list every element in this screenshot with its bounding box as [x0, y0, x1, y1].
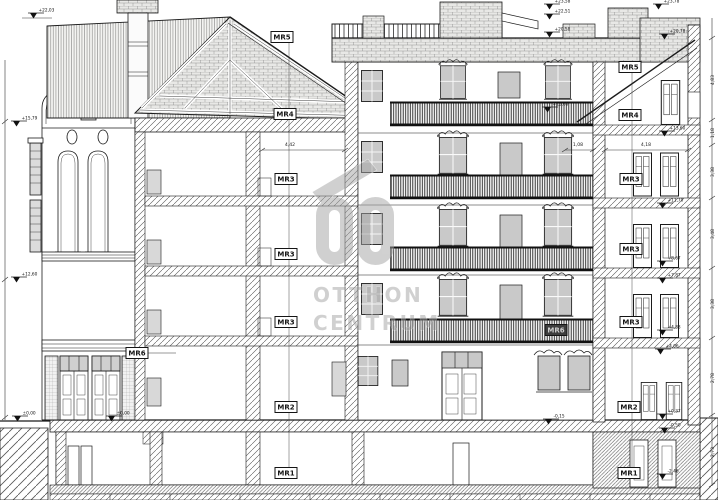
elevation-value: +20,78: [670, 29, 686, 35]
eaves-cornice: [135, 118, 360, 132]
dimension-value: 2,78: [710, 373, 716, 383]
hooded-window: [542, 203, 573, 246]
elevation-value: -2,46: [668, 469, 679, 475]
room-label: MR6: [545, 325, 567, 336]
right-wing-section: [577, 25, 700, 488]
room-label-text: MR3: [277, 176, 294, 184]
elevation-marker: +23,78: [653, 0, 680, 10]
room-label-text: MR5: [621, 64, 638, 72]
elevation-marker: +22,51: [544, 9, 571, 20]
elevation-value: +15,79: [22, 116, 38, 122]
elevation-value: +12,60: [22, 272, 38, 278]
outer-wall: [688, 25, 700, 425]
dimension-value: 3,38: [710, 299, 716, 309]
elevation-value: ±0,00: [117, 411, 130, 417]
stair-window: [362, 71, 383, 102]
dimension-value: 3,38: [710, 167, 716, 177]
elevation-marker: +23,58: [544, 0, 571, 10]
main-roof: [47, 0, 382, 132]
room-label: MR4: [619, 110, 641, 121]
elevation-value: +8,67: [668, 256, 681, 262]
elevation-value: +22,03: [39, 8, 55, 14]
room-label-text: MR3: [277, 319, 294, 327]
room-label-text: MR3: [277, 251, 294, 259]
elevation-value: +15,60: [553, 102, 569, 108]
elevation-value: -0,50: [670, 423, 681, 429]
elevation-value: +13,60: [670, 126, 686, 132]
dimension-value: 4,18: [641, 142, 651, 148]
hooded-window: [437, 203, 468, 246]
basement-door: [453, 443, 469, 485]
room-label-text: MR1: [620, 470, 637, 478]
room-label: MR3: [275, 174, 297, 185]
hooded-window: [439, 60, 467, 99]
floor-slab: [145, 336, 358, 346]
floor-slab: [593, 268, 700, 278]
room-label: MR4: [274, 109, 296, 120]
basement-door: [68, 446, 79, 485]
elevation-value: +7,87: [668, 273, 681, 279]
drawing-canvas: +22,03+15,79+12,60±0,00±0,00+23,58+22,51…: [0, 0, 718, 500]
room-label: MR3: [620, 174, 642, 185]
dimension-value: 4,42: [285, 142, 295, 148]
elevation-value: +4,83: [668, 325, 681, 331]
room-label-text: MR6: [128, 350, 145, 358]
floor-slab: [593, 338, 700, 348]
room-label-text: MR3: [622, 246, 639, 254]
elevation-value: +20,58: [555, 27, 571, 33]
hooded-window: [437, 273, 468, 316]
room-label-text: MR5: [273, 34, 290, 42]
elevation-value: +4,06: [666, 344, 679, 350]
room-label-text: MR2: [277, 404, 294, 412]
watermark-ring: [323, 204, 347, 259]
ground-mass-right: [700, 418, 718, 500]
dimension-value: 1,18: [710, 128, 716, 138]
room-label: MR1: [618, 468, 640, 479]
room-label-text: MR3: [622, 176, 639, 184]
floor-slab: [145, 266, 358, 276]
room-label: MR3: [620, 317, 642, 328]
hooded-window: [544, 60, 572, 99]
elevation-marker: ±0,00: [12, 411, 36, 422]
dimension-value: 1,08: [573, 142, 583, 148]
architectural-section-drawing: +22,03+15,79+12,60±0,00±0,00+23,58+22,51…: [0, 0, 718, 500]
elevation-marker: +22,03: [28, 8, 55, 19]
room-label: MR3: [620, 244, 642, 255]
elevation-value: +11,70: [668, 198, 684, 204]
watermark-line1: OTTHON: [313, 283, 423, 307]
stair-window: [358, 356, 378, 385]
elevation-marker: +15,79: [11, 116, 38, 127]
storefront-pilaster: [45, 356, 58, 420]
room-label-text: MR1: [277, 470, 294, 478]
storefront-unit: [92, 356, 120, 420]
room-label-text: MR6: [547, 327, 564, 335]
elevation-marker: +12,60: [11, 272, 38, 283]
room-label: MR1: [275, 468, 297, 479]
storefront-unit: [60, 356, 88, 420]
elevation-value: +22,51: [555, 9, 571, 15]
balcony-railing: [390, 248, 595, 271]
room-label-text: MR4: [276, 111, 293, 119]
room-label: MR2: [618, 402, 640, 413]
elevation-value: +0,37: [668, 409, 681, 415]
room-label-text: MR3: [622, 319, 639, 327]
watermark-line2: CENTRUM: [313, 311, 441, 335]
ground-mass-left: [0, 428, 48, 500]
room-label: MR3: [275, 317, 297, 328]
room-label: MR2: [275, 402, 297, 413]
section-door: [661, 81, 679, 125]
balcony-railing: [390, 176, 595, 199]
elevation-value: +23,78: [664, 0, 680, 5]
elevation-value: ±0,00: [23, 411, 36, 417]
elevation-value: -0,15: [554, 414, 565, 420]
room-label-text: MR4: [621, 112, 638, 120]
hooded-window: [542, 131, 573, 174]
room-label: MR6: [126, 348, 148, 359]
basement-door: [81, 446, 92, 485]
dimension-value: 4,83: [710, 75, 716, 85]
dimension-value: 2,73: [710, 447, 716, 457]
room-label: MR5: [271, 32, 293, 43]
elevation-value: +23,58: [555, 0, 571, 5]
chimney: [117, 0, 158, 13]
left-tower-facade: [28, 73, 135, 420]
hooded-window: [437, 131, 468, 174]
hooded-window: [542, 273, 573, 316]
chimney: [440, 2, 502, 38]
chimney: [363, 16, 384, 38]
parapet: [332, 38, 658, 62]
room-label-text: MR2: [620, 404, 637, 412]
floor-slab: [593, 198, 700, 208]
room-label: MR5: [619, 62, 641, 73]
section-door: [661, 153, 679, 196]
dimension-value: 3,48: [710, 229, 716, 239]
storefront-pilaster: [122, 356, 135, 420]
room-label: MR3: [275, 249, 297, 260]
section-door: [641, 382, 657, 419]
